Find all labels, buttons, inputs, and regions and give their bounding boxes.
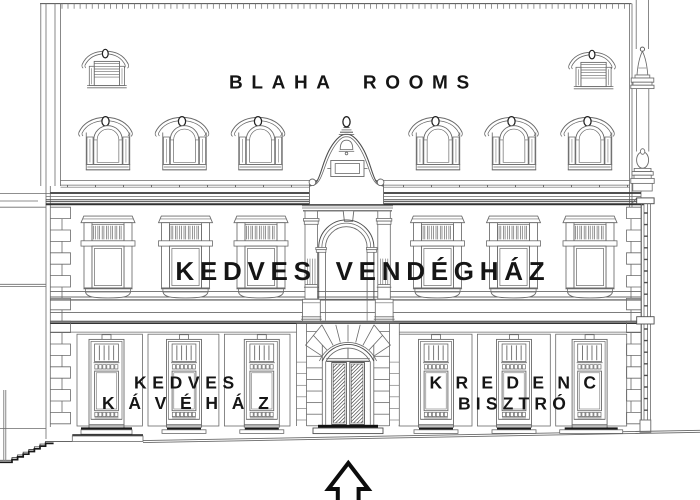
svg-text:KÁVÉHÁZ: KÁVÉHÁZ xyxy=(102,393,283,413)
svg-text:KREDENC: KREDENC xyxy=(430,372,610,392)
svg-text:BISZTRÓ: BISZTRÓ xyxy=(458,393,571,413)
svg-text:BLAHA ROOMS: BLAHA ROOMS xyxy=(229,73,478,94)
svg-text:KEDVES: KEDVES xyxy=(134,372,240,392)
svg-text:KEDVES VENDÉGHÁZ: KEDVES VENDÉGHÁZ xyxy=(175,256,551,286)
